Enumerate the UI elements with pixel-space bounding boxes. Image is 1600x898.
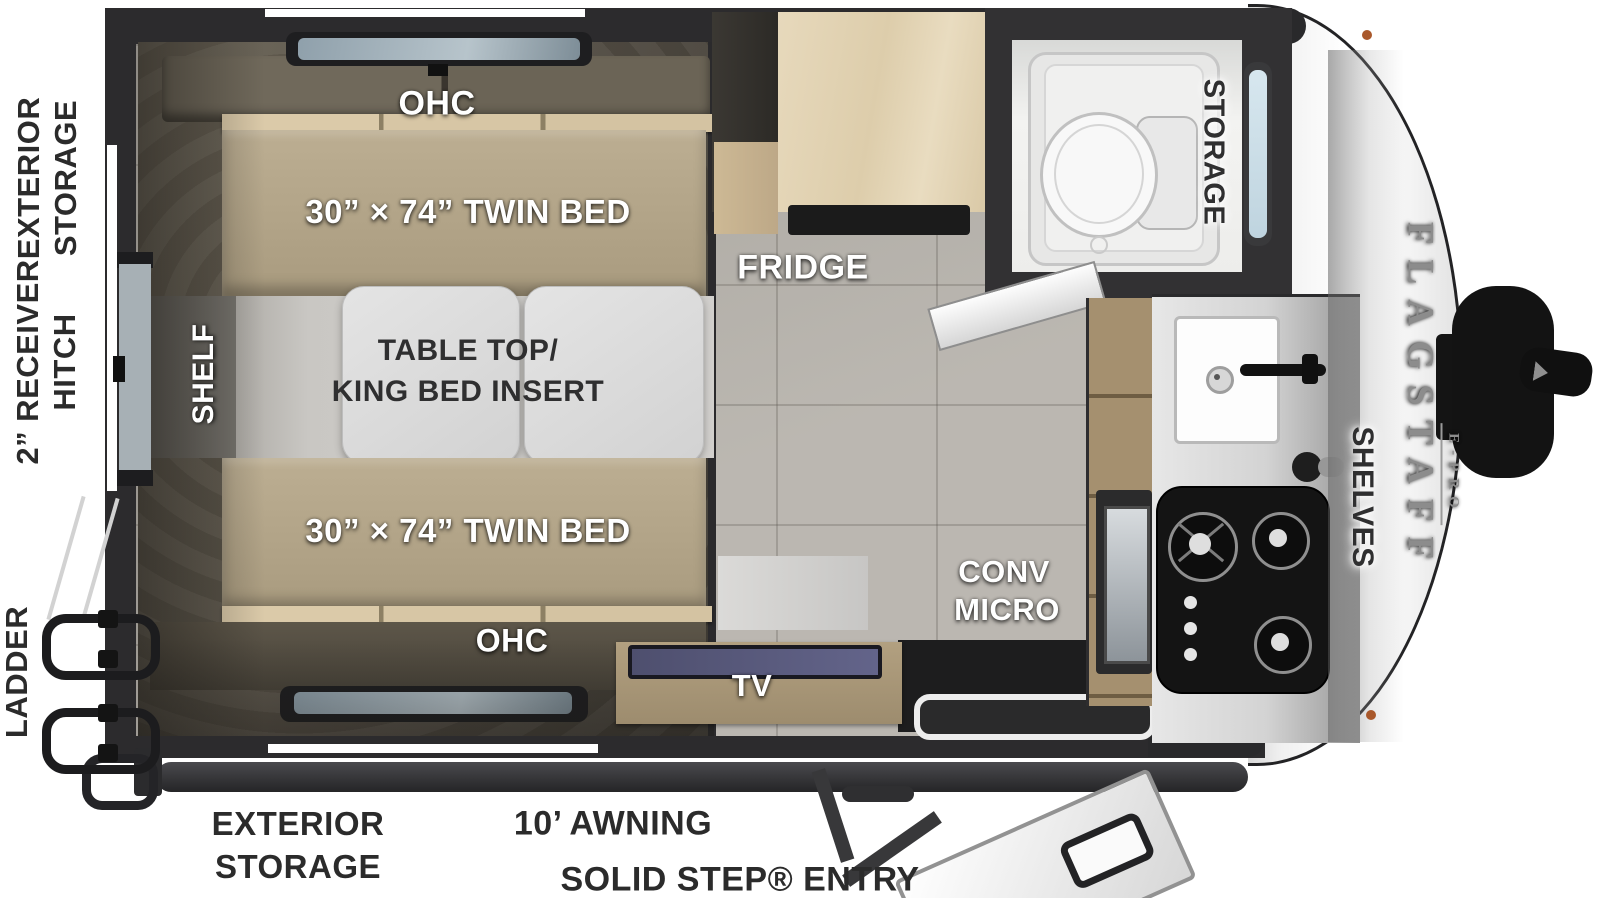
label-line: HITCH <box>46 259 83 464</box>
burner-right-bottom-center <box>1271 633 1289 651</box>
label-exterior-storage-left: EXTERIOR STORAGE <box>10 97 84 259</box>
label-tv: TV <box>732 668 773 704</box>
label-line: EXTERIOR <box>212 802 385 845</box>
awning-roll <box>156 762 1248 792</box>
rear-wall-trim <box>107 145 117 491</box>
burner-right-top-center <box>1269 529 1287 547</box>
brand-epro: E-PRO <box>1441 423 1462 525</box>
clearance-light-top <box>1362 30 1372 40</box>
toilet-seat <box>1054 124 1144 224</box>
bottom-wall-trim <box>268 744 598 753</box>
label-ohc-top: OHC <box>398 85 475 124</box>
awning-arm <box>842 786 914 802</box>
clearance-light-bottom <box>1366 710 1376 720</box>
label-twin-bed-top: 30” × 74” TWIN BED <box>305 193 630 231</box>
label-bath-storage: STORAGE <box>1197 79 1230 225</box>
label-line: STORAGE <box>47 97 84 259</box>
label-conv: CONV <box>958 554 1050 590</box>
entry-door-window <box>1058 810 1157 891</box>
microwave-door-glass <box>1104 506 1150 664</box>
label-awning: 10’ AWNING <box>514 805 712 844</box>
ladder-mount <box>98 650 118 668</box>
faucet-handle <box>1302 354 1318 384</box>
stove-knob-dot <box>1184 648 1197 661</box>
label-shelf: SHELF <box>187 324 221 425</box>
label-micro: MICRO <box>954 592 1060 628</box>
label-solid-step-entry: SOLID STEP® ENTRY <box>560 861 919 898</box>
shower-drain <box>1090 236 1108 254</box>
label-ohc-bottom: OHC <box>476 623 549 660</box>
label-fridge: FRIDGE <box>737 249 868 288</box>
rear-window-cap-bottom <box>117 470 153 486</box>
ladder-mount <box>98 704 118 722</box>
label-table-top: TABLE TOP/ <box>378 334 559 368</box>
ladder-mount <box>98 610 118 628</box>
label-line: 2” RECEIVER <box>9 259 46 464</box>
cabinet-ledge <box>714 142 778 234</box>
sink-drain-center <box>1214 374 1220 380</box>
stove-knob-dot <box>1184 596 1197 609</box>
seat-end-panel <box>718 556 868 630</box>
fridge-front-edge <box>788 205 970 235</box>
label-ladder: LADDER <box>0 606 35 738</box>
floorplan-canvas: OHC 30” × 74” TWIN BED TABLE TOP/ KING B… <box>0 0 1600 898</box>
label-line: STORAGE <box>212 845 385 888</box>
burner-large-center <box>1189 533 1211 555</box>
label-king-bed-insert: KING BED INSERT <box>332 375 605 409</box>
bathroom-window-glass <box>1249 70 1267 238</box>
label-twin-bed-bottom: 30” × 74” TWIN BED <box>305 512 630 550</box>
top-wall-trim <box>265 9 585 17</box>
label-shelves: SHELVES <box>1345 426 1379 567</box>
label-receiver-hitch: 2” RECEIVER HITCH <box>9 259 83 464</box>
shelves-area-shading <box>1328 50 1404 742</box>
brand-flagstaff: FLAGSTAFF <box>1399 222 1442 574</box>
ladder-rail <box>46 496 85 620</box>
sink-drain <box>1206 366 1234 394</box>
label-line: EXTERIOR <box>10 97 47 259</box>
fridge-cabinet <box>778 12 995 212</box>
stove-knob-dot <box>1184 622 1197 635</box>
rear-window-latch <box>113 356 125 382</box>
ladder-mount <box>98 744 118 762</box>
label-exterior-storage-bottom: EXTERIOR STORAGE <box>212 802 385 888</box>
